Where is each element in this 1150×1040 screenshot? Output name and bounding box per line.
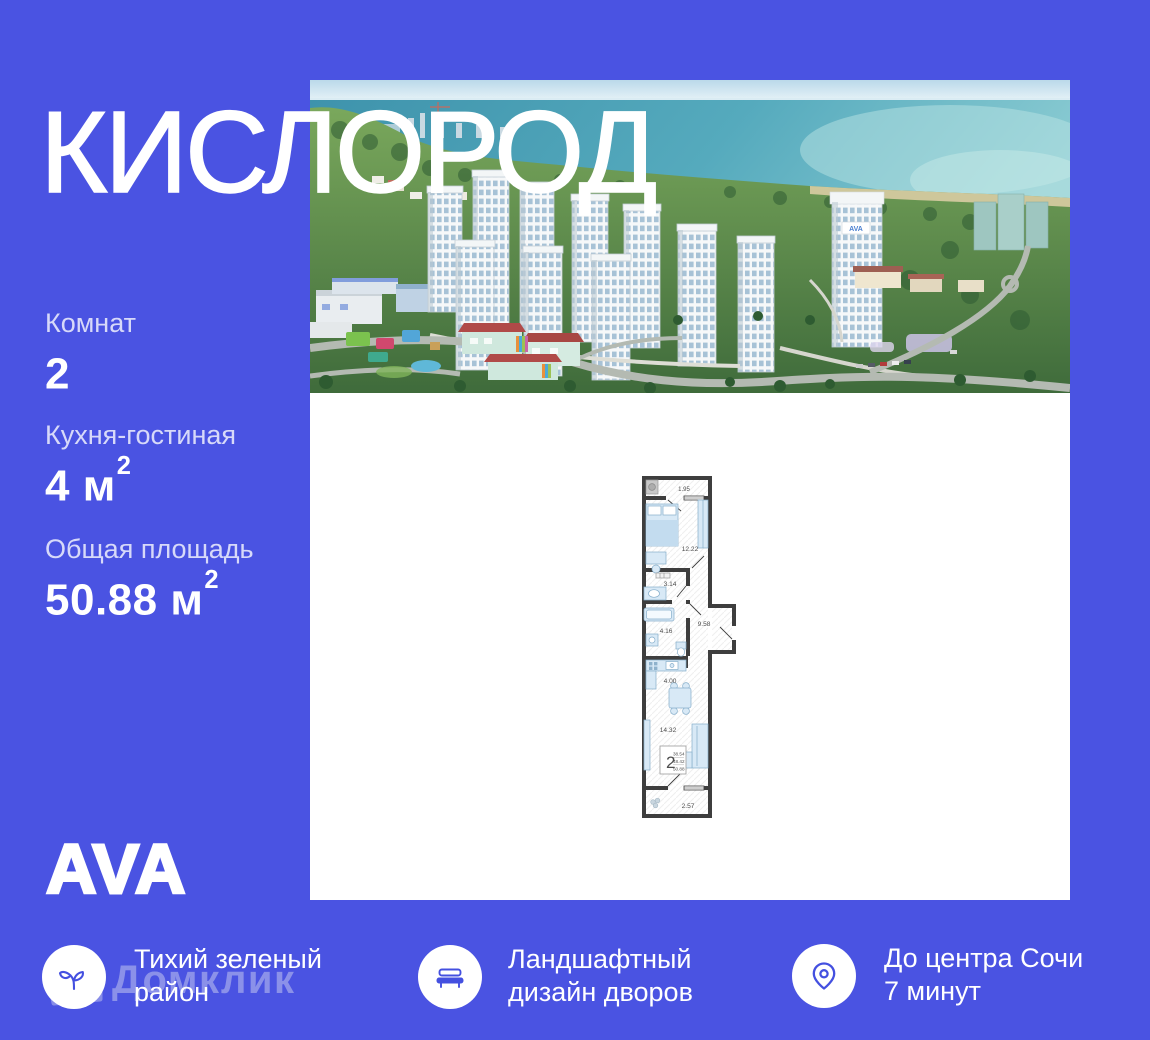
floor-plan: 1.95 12.22 3.14 4.16 9.58 4.00 14.32 2.5…	[640, 474, 744, 820]
complex-title: КИСЛОРОД	[40, 92, 654, 214]
room-label-bedroom: 12.22	[682, 546, 699, 553]
room-label-hallway: 9.58	[698, 621, 711, 628]
feature-quiet-district-text: Тихий зеленый район	[134, 943, 322, 1009]
sprout-icon	[56, 959, 92, 995]
feature-landscape-design	[418, 945, 482, 1009]
room-label-bathroom-2: 4.16	[660, 628, 673, 635]
stat-total-area-label: Общая площадь	[45, 532, 254, 566]
summary-area-no-balcony: 48.42	[673, 759, 685, 764]
room-label-living: 14.32	[660, 727, 677, 734]
stat-total-area-value: 50.88 м2	[45, 566, 254, 626]
stat-kitchen-value: 4 м2	[45, 452, 236, 512]
room-label-loggia: 1.95	[678, 487, 690, 493]
room-label-bathroom: 3.14	[664, 581, 677, 588]
location-pin-icon	[806, 958, 842, 994]
tower-sign: AVA	[849, 226, 863, 233]
stat-kitchen: Кухня-гостиная 4 м2	[45, 418, 236, 512]
stat-rooms-value: 2	[45, 340, 136, 400]
room-label-balcony: 2.57	[682, 803, 695, 810]
feature-landscape-design-text: Ландшафтный дизайн дворов	[508, 943, 693, 1009]
stat-rooms-label: Комнат	[45, 306, 136, 340]
feature-city-center-distance	[792, 944, 856, 1008]
stat-kitchen-label: Кухня-гостиная	[45, 418, 236, 452]
feature-city-center-distance-text: До центра Сочи 7 минут	[884, 942, 1083, 1008]
feature-quiet-district	[42, 945, 106, 1009]
room-label-kitchen: 4.00	[664, 678, 677, 685]
summary-area-total: 50.88	[673, 767, 685, 772]
summary-area-living: 38.54	[673, 752, 685, 757]
stat-total-area: Общая площадь 50.88 м2	[45, 532, 254, 626]
stat-rooms: Комнат 2	[45, 306, 136, 400]
brand-logo: AVA	[46, 834, 186, 904]
bench-icon	[432, 959, 468, 995]
plan-summary-badge: 2 38.54 48.42 50.88	[660, 746, 686, 774]
flyer-root: { "title": "КИСЛОРОД", "stats": [ {"labe…	[0, 0, 1150, 1040]
